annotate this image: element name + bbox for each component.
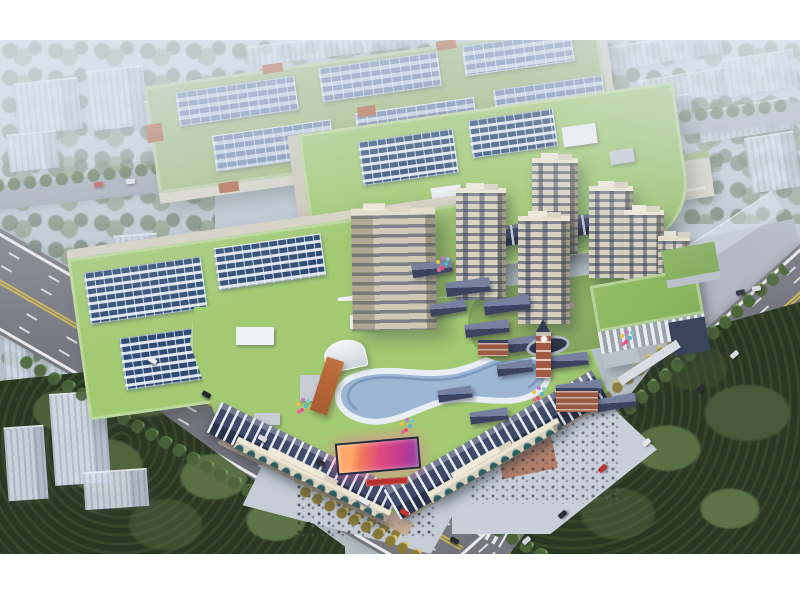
balloon-cluster	[300, 408, 304, 412]
orange-accent	[218, 181, 239, 194]
factory-skylights	[461, 40, 574, 76]
rooftop-unit	[236, 327, 274, 345]
balloon-cluster	[440, 266, 444, 270]
solar-array	[357, 129, 458, 186]
clock-tower	[536, 332, 551, 378]
hazy-building	[85, 65, 149, 131]
hazy-building	[744, 130, 800, 193]
orange-accent	[262, 62, 283, 74]
hazy-building	[13, 77, 82, 135]
factory-skylights	[318, 52, 442, 102]
orange-accent	[436, 40, 457, 51]
brick-retail-building	[478, 340, 508, 356]
grey-apartment	[83, 468, 149, 510]
rooftop-unit	[561, 123, 597, 148]
orange-accent	[145, 123, 163, 143]
solar-array	[468, 109, 558, 159]
solar-array	[213, 234, 326, 291]
brick-retail-building	[556, 388, 598, 412]
car	[126, 179, 135, 185]
hazy-building	[6, 129, 60, 172]
solar-array	[83, 256, 207, 324]
aerial-scene	[0, 40, 800, 554]
rooftop-unit	[609, 148, 635, 165]
balloon-cluster	[404, 428, 408, 432]
car	[94, 182, 103, 188]
rendering-photo	[0, 0, 800, 600]
factory-skylights	[175, 76, 299, 126]
grey-apartment	[3, 425, 48, 502]
balloon-cluster	[624, 340, 628, 344]
balloon-cluster	[536, 396, 540, 400]
